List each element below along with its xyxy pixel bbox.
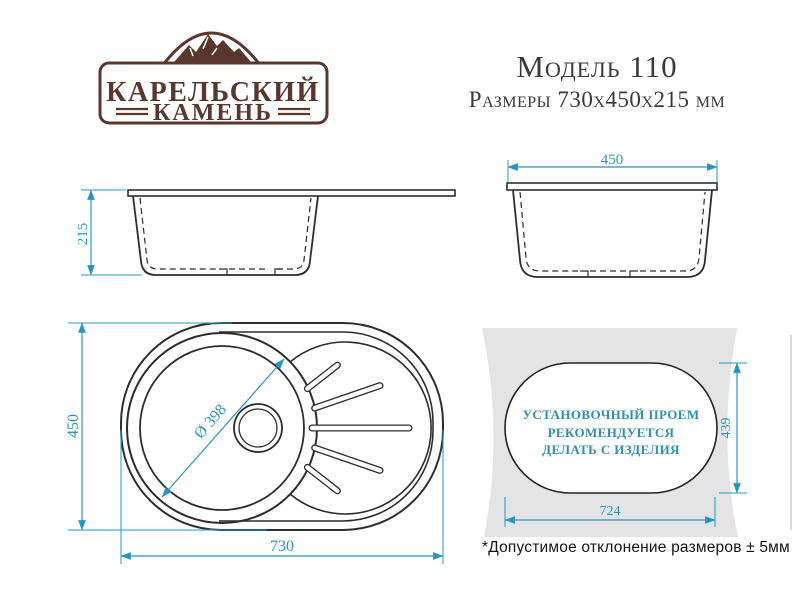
top-length-dimension: 730	[121, 430, 443, 564]
cutout-note: УСТАНОВОЧНЫЙ ПРОЕМ РЕКОМЕНДУЕТСЯ ДЕЛАТЬ …	[522, 407, 699, 457]
brand-name-line2: КАМЕНЬ	[153, 100, 273, 126]
drainboard-grooves	[307, 365, 409, 491]
front-bowl-outline	[513, 190, 712, 277]
drain-hole-inner	[239, 409, 277, 447]
cutout-note-line2: РЕКОМЕНДУЕТСЯ	[548, 425, 675, 440]
side-rim	[128, 190, 455, 196]
cutout-note-line1: УСТАНОВОЧНЫЙ ПРОЕМ	[522, 407, 699, 422]
drawing-sheet: КАРЕЛЬСКИЙ КАМЕНЬ Модель 110 Размеры 730…	[0, 0, 800, 612]
title-block: Модель 110 Размеры 730х450х215 мм	[430, 50, 764, 113]
cutout-note-line3: ДЕЛАТЬ С ИЗДЕЛИЯ	[542, 442, 680, 457]
side-height-dimension: 215	[78, 190, 142, 275]
tolerance-footnote: *Допустимое отклонение размеров ± 5мм	[482, 539, 790, 557]
side-profile	[128, 190, 455, 275]
side-height-label: 215	[78, 223, 91, 246]
model-dimensions: Размеры 730х450х215 мм	[430, 87, 764, 113]
top-view-drawing: 450 730 Ø 398	[62, 318, 462, 583]
brand-logo: КАРЕЛЬСКИЙ КАМЕНЬ	[94, 26, 334, 140]
front-view-drawing: 450	[486, 152, 742, 297]
cutout-diagram: УСТАНОВОЧНЫЙ ПРОЕМ РЕКОМЕНДУЕТСЯ ДЕЛАТЬ …	[478, 325, 800, 543]
front-width-dimension: 450	[508, 152, 717, 182]
front-bowl-inner-dashed	[520, 192, 705, 271]
cutout-length-label: 724	[600, 504, 621, 519]
top-width-label: 450	[65, 414, 82, 438]
bowl-diameter-label: Ø 398	[191, 401, 230, 442]
top-width-dimension: 450	[65, 323, 267, 530]
side-bowl-inner-dashed	[140, 198, 311, 269]
side-bowl-outline	[133, 196, 318, 275]
top-length-label: 730	[270, 538, 294, 555]
sink-top-outline	[121, 323, 443, 530]
front-rim	[507, 183, 717, 190]
bowl-inner-circle	[140, 346, 304, 510]
bowl-diameter-dimension: Ø 398	[162, 359, 284, 497]
front-profile	[507, 183, 717, 277]
bowl-outer-circle	[127, 333, 317, 523]
model-title: Модель 110	[430, 50, 764, 84]
front-width-label: 450	[601, 152, 624, 168]
side-view-drawing: 215	[78, 168, 463, 298]
cutout-height-label: 439	[719, 418, 734, 439]
drain-hole-outer	[234, 404, 282, 452]
